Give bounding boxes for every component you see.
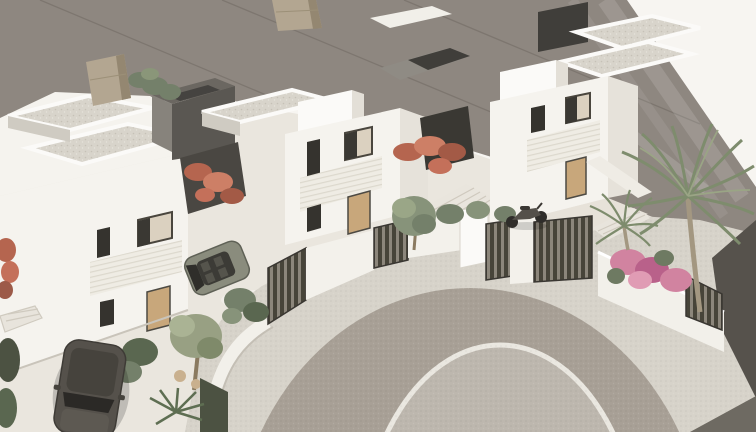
villa-right-window-pane: [566, 96, 577, 124]
planter-pot: [191, 379, 201, 389]
villa-middle-door: [348, 191, 370, 234]
villa-aerial-render: [0, 0, 756, 432]
villa-middle-window-ground: [307, 204, 321, 232]
slatted-fence-3: [486, 220, 512, 280]
stone-pillar-1: [272, 0, 322, 31]
render-image: [0, 0, 756, 432]
villa-left-window-ground: [100, 299, 114, 327]
villa-right-door: [566, 157, 586, 199]
stone-pillar-2: [86, 54, 131, 106]
villa-left-window-upper: [97, 227, 110, 258]
motorcycle-seat: [520, 206, 530, 210]
planter-pot: [174, 370, 186, 382]
terrace-wall: [152, 95, 172, 152]
villa-left-door: [147, 286, 170, 331]
villa-right-window-upper: [531, 105, 545, 133]
suv-roof: [65, 347, 119, 398]
villa-middle-window-pane: [345, 131, 357, 160]
villa-left-window-pane: [138, 218, 150, 247]
